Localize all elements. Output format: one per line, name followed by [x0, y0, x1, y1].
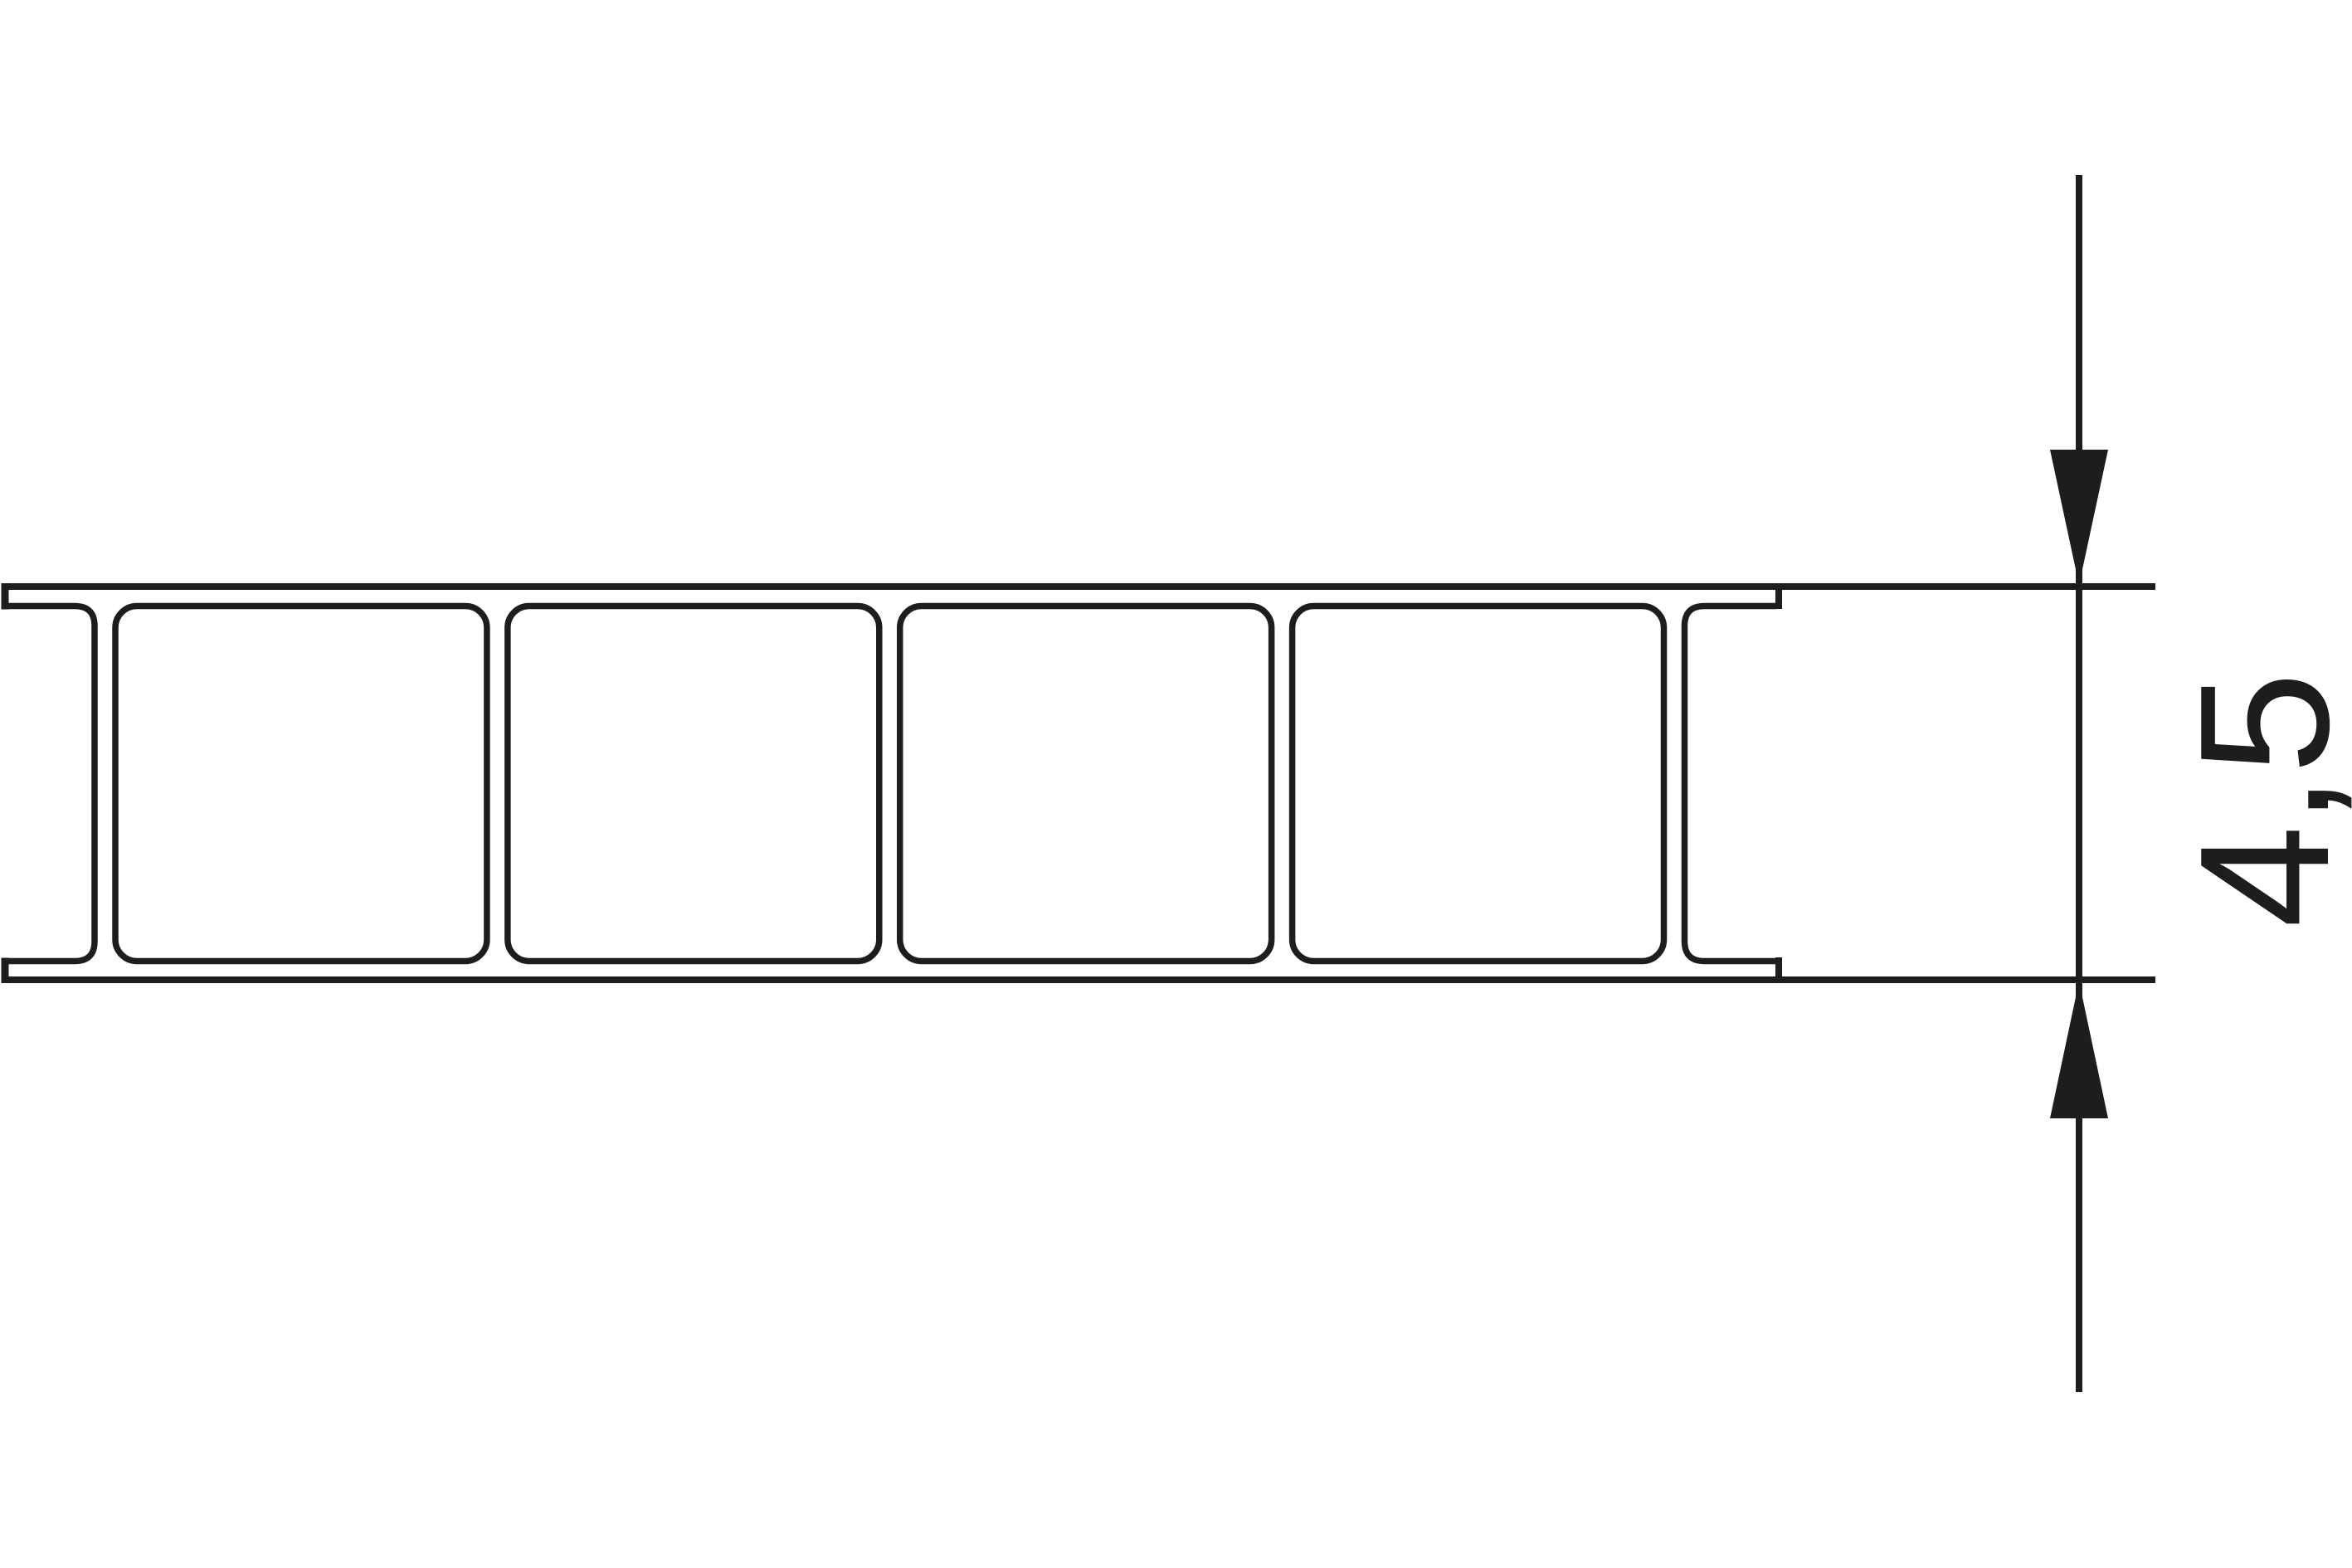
panel-left-partial-cell-wall: [7, 606, 95, 962]
panel-cross-section: [5, 583, 2155, 983]
dimension-arrow-up-icon: [2050, 981, 2108, 1118]
panel-cell: [115, 606, 487, 962]
panel-cell: [508, 606, 879, 962]
twin-wall-sheet-cross-section-drawing: 4,5: [0, 0, 2352, 1568]
panel-cell: [1293, 606, 1664, 962]
drawing-canvas: 4,5: [0, 0, 2352, 1568]
dimension-label: 4,5: [2162, 672, 2352, 928]
thickness-dimension: 4,5: [2050, 175, 2352, 1392]
dimension-arrow-down-icon: [2050, 450, 2108, 585]
panel-cell: [900, 606, 1272, 962]
panel-right-partial-cell-wall: [1685, 606, 1778, 962]
panel-cells: [115, 606, 1664, 962]
